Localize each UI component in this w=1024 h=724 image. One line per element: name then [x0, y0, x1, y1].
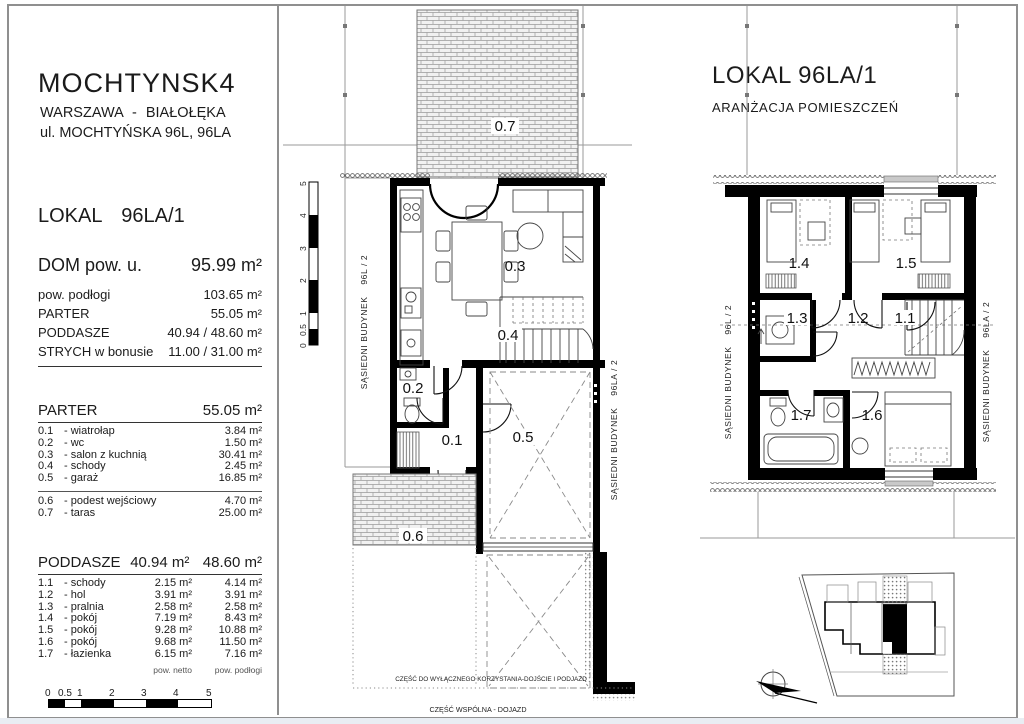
- bedroom-15-furniture: [850, 200, 950, 288]
- parter-plan-drawing: 0 0.5 1 2 3 4 5: [280, 0, 640, 724]
- table-separator: [38, 491, 262, 492]
- table-row: 0.7- taras25.00 m²: [38, 508, 262, 520]
- room-no: 0.2: [38, 438, 64, 450]
- room-podlogi: 11.50 m²: [192, 637, 262, 649]
- vertical-scale-bar: 0 0.5 1 2 3 4 5: [298, 181, 318, 348]
- parter-area-table: PARTER 55.05 m² 0.1- wiatrołap3.84 m² 0.…: [38, 402, 262, 520]
- room-no: 1.6: [38, 637, 64, 649]
- footnote-podlogi: pow. podłogi: [192, 665, 262, 675]
- kitchen-units: [400, 190, 423, 365]
- note-exclusive-use: CZĘŚĆ DO WYŁĄCZNEGO KORZYSTANIA-DOJŚCIE …: [395, 674, 587, 683]
- north-arrow-icon: [756, 669, 817, 703]
- room-label-16: 1.6: [862, 407, 883, 424]
- summary-label: pow. podłogi: [38, 285, 110, 304]
- scale-label: 0.5: [298, 324, 308, 336]
- summary-value: 40.94 / 48.60 m²: [167, 323, 262, 342]
- french-door: [430, 184, 498, 218]
- parter-table-header: PARTER 55.05 m²: [38, 402, 262, 423]
- room-label-salon: 0.3: [505, 258, 526, 275]
- scale-label: 1: [77, 688, 83, 699]
- room-label-17: 1.7: [791, 407, 812, 424]
- bedroom-14-furniture: [766, 200, 830, 288]
- scale-label: 3: [298, 246, 308, 251]
- table-row: 1.7- łazienka6.15 m²7.16 m²: [38, 649, 262, 661]
- scale-label: 4: [298, 213, 308, 218]
- room-name: - wc: [64, 438, 200, 450]
- neighbor-left-label: SĄSIEDNI BUDYNEK 96L / 2: [723, 305, 733, 439]
- scale-label: 0: [45, 688, 51, 699]
- table-row: 1.6- pokój9.68 m²11.50 m²: [38, 637, 262, 649]
- room-no: 0.5: [38, 473, 64, 485]
- room-area: 25.00 m²: [200, 508, 262, 520]
- table-row: 1.2- hol3.91 m²3.91 m²: [38, 590, 262, 602]
- summary-main-value: 95.99 m²: [191, 255, 262, 276]
- terrace-area: [417, 10, 578, 178]
- area-summary: DOM pow. u. 95.99 m² pow. podłogi 103.65…: [38, 255, 262, 367]
- project-title: MOCHTYNSK4: [38, 68, 236, 99]
- room-label-garaz: 0.5: [513, 429, 534, 446]
- table-footnotes: pow. netto pow. podłogi: [38, 665, 262, 675]
- summary-row: STRYCH w bonusie 11.00 / 31.00 m²: [38, 342, 262, 361]
- room-label-wiatrolap: 0.1: [442, 432, 463, 449]
- poddasze-plan-drawing: 1.4 1.5 1.3 1.2 1.1 1.7 1.6 SĄSIEDNI BUD…: [700, 0, 1024, 560]
- summary-value: 55.05 m²: [211, 304, 262, 323]
- scale-label: 5: [298, 181, 308, 186]
- room-label-12: 1.2: [848, 310, 869, 327]
- floor-plan-sheet: MOCHTYNSK4 WARSZAWA - BIAŁOŁĘKA ul. MOCH…: [0, 0, 1024, 724]
- garage-interior: [483, 372, 593, 551]
- window-lines: [884, 188, 938, 477]
- summary-value: 11.00 / 31.00 m²: [168, 342, 262, 361]
- summary-main-row: DOM pow. u. 95.99 m²: [38, 255, 262, 276]
- neighbor-left-label: SĄSIEDNI BUDYNEK 96L / 2: [359, 255, 369, 389]
- unit-title: LOKAL 96LA/1: [38, 205, 185, 228]
- summary-label: PODDASZE: [38, 323, 110, 342]
- poddasze-podlogi: 48.60 m²: [189, 554, 262, 571]
- neighbor-right-label: SĄSIEDNI BUDYNEK 96LA / 2: [609, 360, 619, 501]
- poddasze-table-header: PODDASZE 40.94 m² 48.60 m²: [38, 554, 262, 575]
- summary-label: PARTER: [38, 304, 90, 323]
- poddasze-title: PODDASZE: [38, 554, 121, 571]
- highlighted-unit: [883, 576, 907, 674]
- summary-label: STRYCH w bonusie: [38, 342, 153, 361]
- address-city: WARSZAWA - BIAŁOŁĘKA: [40, 105, 226, 121]
- summary-value: 103.65 m²: [203, 285, 262, 304]
- sofa: [513, 190, 583, 262]
- room-no: 0.6: [38, 496, 64, 508]
- room-no: 1.7: [38, 649, 64, 661]
- room-label-schody: 0.4: [498, 327, 519, 344]
- scale-label: 1: [298, 311, 308, 316]
- scale-label: 0.5: [58, 688, 72, 699]
- note-common-part: CZĘŚĆ WSPÓLNA - DOJAZD: [429, 705, 526, 714]
- room-label-podest: 0.6: [403, 528, 424, 545]
- poddasze-area-table: PODDASZE 40.94 m² 48.60 m² 1.1- schody2.…: [38, 554, 262, 675]
- scale-label: 5: [206, 688, 212, 699]
- address-street: ul. MOCHTYŃSKA 96L, 96LA: [40, 125, 231, 141]
- room-name: - garaż: [64, 473, 200, 485]
- scale-label: 2: [298, 278, 308, 283]
- room-name: - wiatrołap: [64, 426, 200, 438]
- table-row: 0.2- wc1.50 m²: [38, 438, 262, 450]
- scale-label: 4: [173, 688, 179, 699]
- scale-label: 2: [109, 688, 115, 699]
- room-name: - taras: [64, 508, 200, 520]
- room-label-taras: 0.7: [495, 118, 516, 135]
- room-no: 1.2: [38, 590, 64, 602]
- summary-row: pow. podłogi 103.65 m²: [38, 285, 262, 304]
- room-no: 0.7: [38, 508, 64, 520]
- summary-row: PODDASZE 40.94 / 48.60 m²: [38, 323, 262, 342]
- summary-row: PARTER 55.05 m²: [38, 304, 262, 323]
- scale-label: 3: [141, 688, 147, 699]
- parter-title: PARTER: [38, 402, 188, 419]
- scale-bar-segments: [48, 699, 212, 708]
- room-netto: 6.15 m²: [128, 649, 192, 661]
- room-name: - podest wejściowy: [64, 496, 200, 508]
- room-label-11: 1.1: [895, 310, 916, 327]
- room-label-wc: 0.2: [403, 380, 424, 397]
- room-netto: 9.68 m²: [128, 637, 192, 649]
- parter-area: 55.05 m²: [188, 402, 262, 419]
- wall-hatch-column: [585, 552, 593, 682]
- summary-main-label: DOM pow. u.: [38, 255, 142, 276]
- room-name: - łazienka: [64, 649, 128, 661]
- plot-outline: [799, 573, 954, 696]
- bedroom-16-furniture: [852, 392, 951, 466]
- room-label-13: 1.3: [787, 310, 808, 327]
- table-row: 0.5- garaż16.85 m²: [38, 473, 262, 485]
- scale-label: 0: [298, 343, 308, 348]
- room-area: 1.50 m²: [200, 438, 262, 450]
- wall-hatch-foot: [593, 694, 635, 701]
- room-name: - hol: [64, 590, 128, 602]
- room-podlogi: 7.16 m²: [192, 649, 262, 661]
- room-area: 16.85 m²: [200, 473, 262, 485]
- room-podlogi: 3.91 m²: [192, 590, 262, 602]
- site-plan-map: [755, 552, 1020, 724]
- room-label-15: 1.5: [896, 255, 917, 272]
- room-label-14: 1.4: [789, 255, 810, 272]
- room-name: - pokój: [64, 637, 128, 649]
- summary-rule: [38, 366, 262, 367]
- room-netto: 3.91 m²: [128, 590, 192, 602]
- footnote-netto: pow. netto: [128, 665, 192, 675]
- table-row: 0.6- podest wejściowy4.70 m²: [38, 496, 262, 508]
- poddasze-netto: 40.94 m²: [121, 554, 190, 571]
- room-area: 4.70 m²: [200, 496, 262, 508]
- panel-divider: [277, 4, 279, 715]
- neighbor-right-label: SĄSIEDNI BUDYNEK 96LA / 2: [981, 302, 991, 443]
- wardrobe: [852, 358, 935, 378]
- horizontal-scale-bar: 0 0.5 1 2 3 4 5: [48, 688, 214, 710]
